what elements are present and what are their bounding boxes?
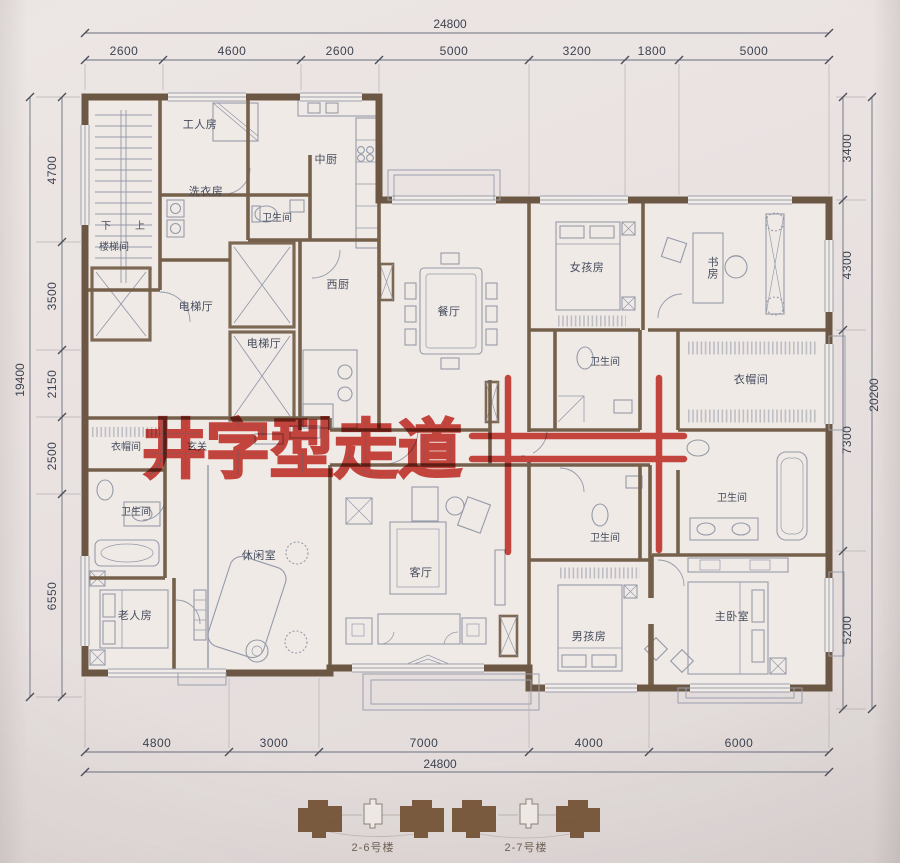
label-west-kitchen: 西厨 [327, 278, 350, 291]
dim-bottom-0: 4800 [143, 736, 172, 750]
site-legend: 2-6号楼 2-7号楼 [298, 799, 600, 854]
floorplan-photo: 工人房 中厨 洗衣房 卫生间 下 上 楼梯间 西厨 餐厅 女孩房 书房 电梯厅 … [0, 0, 900, 863]
label-cloak-right: 衣帽间 [734, 372, 769, 386]
dim-bottom-2: 7000 [410, 736, 439, 750]
dim-top-2: 2600 [326, 44, 355, 58]
label-girls-room: 女孩房 [570, 260, 605, 274]
dim-top-0: 2600 [110, 44, 139, 58]
building-footprints [298, 800, 600, 838]
floorplan-svg: 工人房 中厨 洗衣房 卫生间 下 上 楼梯间 西厨 餐厅 女孩房 书房 电梯厅 … [0, 0, 900, 863]
dim-left-1: 3500 [45, 282, 59, 311]
connector-footprints [364, 799, 538, 828]
label-leisure: 休闲室 [242, 548, 277, 562]
label-bath-master: 卫生间 [717, 491, 747, 504]
label-bath-left: 卫生间 [121, 505, 151, 518]
label-cloak-left: 衣帽间 [111, 440, 141, 453]
dim-bottom-1: 3000 [260, 736, 289, 750]
label-bath-boys: 卫生间 [590, 531, 620, 544]
label-bath-top: 卫生间 [262, 211, 292, 224]
dim-left-total: 19400 [13, 363, 27, 397]
dim-right-1: 4300 [840, 251, 854, 280]
label-stairs-down: 下 [101, 221, 111, 232]
dim-left-4: 6550 [45, 582, 59, 611]
label-living: 客厅 [410, 565, 433, 579]
dim-bottom-total: 24800 [423, 757, 457, 771]
label-bath-girls: 卫生间 [590, 355, 620, 368]
label-worker-room: 工人房 [183, 118, 218, 131]
dim-bottom-4: 6000 [725, 736, 754, 750]
label-elevator-hall-1: 电梯厅 [179, 300, 214, 313]
dim-top-4: 3200 [563, 44, 592, 58]
dim-top-3: 5000 [440, 44, 469, 58]
label-stairwell: 楼梯间 [99, 240, 129, 253]
label-laundry: 洗衣房 [189, 184, 224, 198]
label-study: 书房 [706, 256, 719, 280]
dim-right-total: 20200 [867, 378, 881, 412]
dim-top-6: 5000 [740, 44, 769, 58]
label-elders-room: 老人房 [118, 609, 153, 622]
legend-building-left-label: 2-6号楼 [352, 840, 395, 854]
label-dining: 餐厅 [438, 304, 461, 318]
dim-right-2: 7300 [840, 426, 854, 455]
red-annotation-text: 井字型走道 [142, 414, 462, 486]
dim-left-0: 4700 [45, 156, 59, 185]
dim-left-2: 2150 [45, 370, 59, 399]
label-elevator-hall-2: 电梯厅 [247, 337, 282, 350]
legend-building-right-label: 2-7号楼 [505, 840, 548, 854]
dim-top-1: 4600 [218, 44, 247, 58]
dim-left-3: 2500 [45, 442, 59, 471]
label-boys-room: 男孩房 [572, 630, 607, 643]
dim-right-3: 5200 [840, 616, 854, 645]
dim-top-5: 1800 [638, 44, 667, 58]
dim-bottom-3: 4000 [575, 736, 604, 750]
dim-right-0: 3400 [840, 134, 854, 163]
label-master-bedroom: 主卧室 [715, 609, 750, 623]
label-main-kitchen: 中厨 [315, 153, 338, 166]
dim-top-total: 24800 [433, 17, 467, 31]
label-stairs-up: 上 [135, 220, 145, 232]
